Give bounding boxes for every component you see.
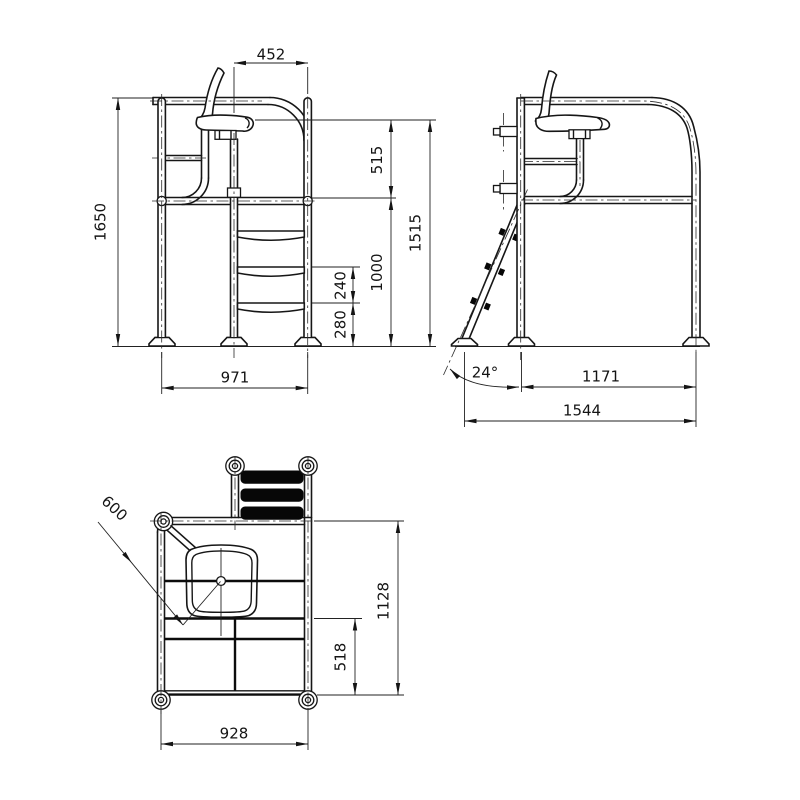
dim-seat-diagonal: 600 bbox=[98, 492, 131, 525]
dim-ladder-angle: 24° bbox=[472, 364, 499, 382]
foot-flange bbox=[221, 337, 247, 346]
seat-mount bbox=[215, 131, 236, 140]
ladder-rung bbox=[238, 303, 305, 312]
dim-plan-overall-depth: 1128 bbox=[375, 582, 393, 620]
mount-bracket bbox=[500, 127, 517, 137]
side-elevation-view: 24° 1171 1544 bbox=[444, 71, 710, 427]
dim-plan-base-width: 928 bbox=[220, 725, 249, 743]
dim-seat-height: 1515 bbox=[407, 214, 425, 252]
dim-rung-spacing: 240 bbox=[332, 271, 350, 300]
front-elevation-view: 452 1650 240 280 515 1000 1515 bbox=[92, 46, 437, 395]
seat-pan bbox=[196, 115, 253, 131]
ladder-rung bbox=[238, 267, 305, 276]
dim-frame-height: 1650 bbox=[92, 203, 110, 241]
dim-bottom-rung-height: 280 bbox=[332, 310, 350, 339]
dim-seat-to-platform: 515 bbox=[368, 146, 386, 175]
mount-bracket bbox=[500, 184, 517, 194]
ladder-rung bbox=[238, 231, 305, 240]
ladder-tread bbox=[241, 471, 304, 484]
foot-flange bbox=[509, 338, 535, 347]
dim-seat-width: 452 bbox=[257, 46, 286, 64]
dim-leg-span: 1171 bbox=[582, 368, 620, 386]
dim-platform-height: 1000 bbox=[368, 253, 386, 291]
technical-drawing: 452 1650 240 280 515 1000 1515 bbox=[0, 0, 800, 800]
mount-bracket-nub bbox=[494, 186, 501, 193]
dim-base-width: 971 bbox=[221, 369, 250, 387]
seat-pan bbox=[536, 115, 610, 131]
ladder-tread bbox=[241, 507, 304, 520]
mount-bracket-nub bbox=[494, 129, 501, 136]
seat-mount bbox=[569, 130, 590, 139]
drawing-sheet: 452 1650 240 280 515 1000 1515 bbox=[0, 0, 800, 800]
ladder-foot-flange bbox=[452, 339, 478, 347]
plan-view: 600 1128 518 928 bbox=[98, 456, 404, 750]
ladder-tread bbox=[241, 489, 304, 502]
dim-rear-depth: 518 bbox=[332, 643, 350, 672]
dim-overall-depth: 1544 bbox=[563, 402, 601, 420]
ladder-rail bbox=[461, 202, 524, 343]
